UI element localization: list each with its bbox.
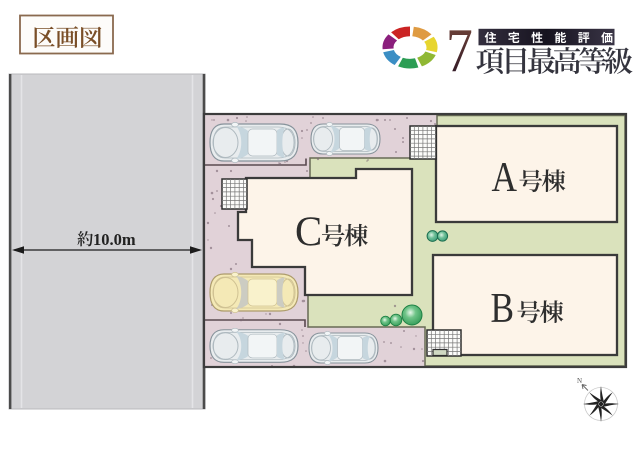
svg-text:N: N: [577, 377, 582, 385]
svg-text:10.0m: 10.0m: [93, 230, 136, 249]
svg-text:7: 7: [446, 15, 473, 85]
svg-text:B: B: [491, 285, 515, 332]
svg-text:A: A: [492, 154, 517, 201]
svg-text:C: C: [295, 208, 322, 255]
